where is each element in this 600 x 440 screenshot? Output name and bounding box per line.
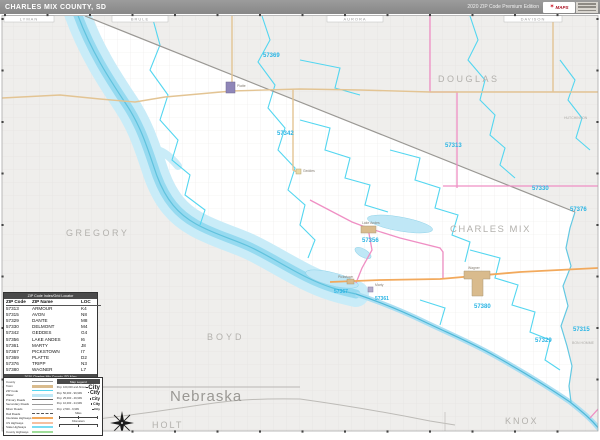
scale-bars: Miles Kilometers (57, 413, 100, 426)
miles-label: Miles (57, 412, 100, 415)
zip-label-57369: 57369 (263, 53, 280, 59)
zip-table-body: 57313ARMOURK4 57315AVONN8 57329DANTEM8 5… (4, 306, 97, 374)
legend-label: Rail Roads (6, 412, 32, 416)
zip-label-57330: 57330 (532, 186, 549, 192)
legend-population-column: Map Legend Pop: 100,000 and AboveCity Po… (56, 378, 102, 435)
logo-text: MAPS (556, 5, 569, 10)
legend-label: Minor Roads (6, 407, 32, 411)
logo-secondary-box (576, 2, 598, 13)
town-marty (368, 287, 373, 292)
town-swatch (32, 385, 53, 388)
zip-label-57367: 57367 (334, 289, 348, 295)
legend-label: Secondary Roads (6, 402, 32, 406)
railroad-swatch (32, 413, 53, 414)
cell: L7 (81, 367, 101, 373)
legend-item: County Highways (6, 430, 55, 434)
zip-line-swatch (32, 390, 53, 391)
kilometers-bar (59, 424, 98, 425)
minor-road-swatch (32, 409, 53, 410)
county-line-swatch (32, 381, 53, 382)
col-zip-code: ZIP Code (6, 299, 32, 306)
county-label-hutchinson: HUTCHINSON (564, 116, 588, 120)
map-legend: County Town ZIP Code Water Primary Roads… (3, 377, 103, 436)
town-label-marty: Marty (375, 283, 384, 287)
zip-code-index-table: ZIP Code Index/Grid Locator ZIP Code ZIP… (3, 292, 98, 381)
water-swatch (32, 394, 53, 397)
interstate-swatch (32, 417, 53, 419)
population-label: Pop: 10,000 - 24,999 (57, 402, 82, 405)
zip-label-57342: 57342 (277, 131, 294, 137)
logo-star-icon: ✶ (549, 4, 554, 10)
cell: 57380 (6, 367, 32, 373)
legend-label: Interstate Highways (6, 416, 32, 420)
map-title: CHARLES MIX COUNTY, SD (5, 4, 106, 11)
zip-label-57356: 57356 (362, 238, 379, 244)
legend-label: State Highways (6, 425, 32, 429)
state-label-nebraska: Nebraska (170, 388, 242, 405)
legend-label: County (6, 380, 32, 384)
col-zip-name: ZIP Name (32, 299, 81, 306)
neighbor-label-aurora: AURORA (343, 17, 366, 22)
map-product-screenshot: DOUGLAS GREGORY CHARLES MIX BOYD HOLT KN… (0, 0, 600, 440)
edition-label: 2020 ZIP Code Premium Edition (467, 4, 539, 10)
legend-symbols-column: County Town ZIP Code Water Primary Roads… (4, 378, 56, 435)
legend-label: US Highways (6, 421, 32, 425)
town-geddes (296, 169, 301, 174)
legend-label: Town (6, 384, 32, 388)
county-label-holt: HOLT (152, 420, 183, 430)
zip-table-header-row: ZIP Code ZIP Name LOC (4, 299, 97, 306)
population-label: Pop: 50,000 - 99,999 (57, 392, 82, 395)
town-platte (226, 82, 235, 93)
county-label-bon-homme: BON HOMME (572, 341, 595, 345)
city-sample: City (91, 402, 100, 406)
us-highway-swatch (32, 422, 53, 424)
neighbor-label-lyman: LYMAN (20, 17, 38, 22)
county-label-charles-mix: CHARLES MIX (450, 224, 531, 235)
town-label-platte: Platte (237, 84, 246, 88)
zip-label-57380: 57380 (474, 304, 491, 310)
county-label-gregory: GREGORY (66, 228, 129, 238)
zip-label-57361: 57361 (375, 296, 389, 302)
zip-label-57376: 57376 (570, 207, 587, 213)
town-label-lake-andes: Lake Andes (362, 221, 380, 225)
primary-road-swatch (32, 399, 53, 400)
town-pickstown (347, 279, 354, 284)
county-label-douglas: DOUGLAS (438, 74, 500, 84)
legend-label: County Highways (6, 430, 32, 434)
population-label: Pop: 25,000 - 49,999 (57, 397, 82, 400)
cell: WAGNER (32, 367, 81, 373)
miles-bar (59, 417, 98, 418)
population-label: Pop: 100,000 and Above (57, 386, 86, 389)
town-label-geddes: Geddes (303, 169, 315, 173)
county-label-boyd: BOYD (207, 332, 245, 342)
marketmaps-logo: ✶ MAPS (543, 2, 575, 13)
neighbor-label-brule: BRULE (131, 17, 149, 22)
zip-label-57315: 57315 (573, 327, 590, 333)
zip-label-57313: 57313 (445, 143, 462, 149)
town-lake-andes (361, 226, 376, 233)
kilometers-label: Kilometers (57, 420, 100, 423)
county-highway-swatch (32, 431, 53, 433)
legend-label: Primary Roads (6, 398, 32, 402)
legend-label: ZIP Code (6, 389, 32, 393)
miles-scale: Miles (57, 413, 100, 418)
kilometers-scale: Kilometers (57, 421, 100, 426)
county-label-knox: KNOX (505, 416, 539, 426)
zip-label-57329: 57329 (535, 338, 552, 344)
col-loc: LOC (81, 299, 101, 306)
neighbor-label-davison: DAVISON (521, 17, 546, 22)
city-sample: City (92, 407, 100, 411)
town-label-wagner: Wagner (468, 266, 481, 270)
state-highway-swatch (32, 426, 53, 428)
title-bar: CHARLES MIX COUNTY, SD 2020 ZIP Code Pre… (0, 0, 600, 14)
secondary-road-swatch (32, 404, 53, 405)
town-label-pickstown: Pickstown (338, 275, 353, 279)
legend-label: Water (6, 393, 32, 397)
population-label: Pop: 2,500 - 9,999 (57, 408, 79, 411)
